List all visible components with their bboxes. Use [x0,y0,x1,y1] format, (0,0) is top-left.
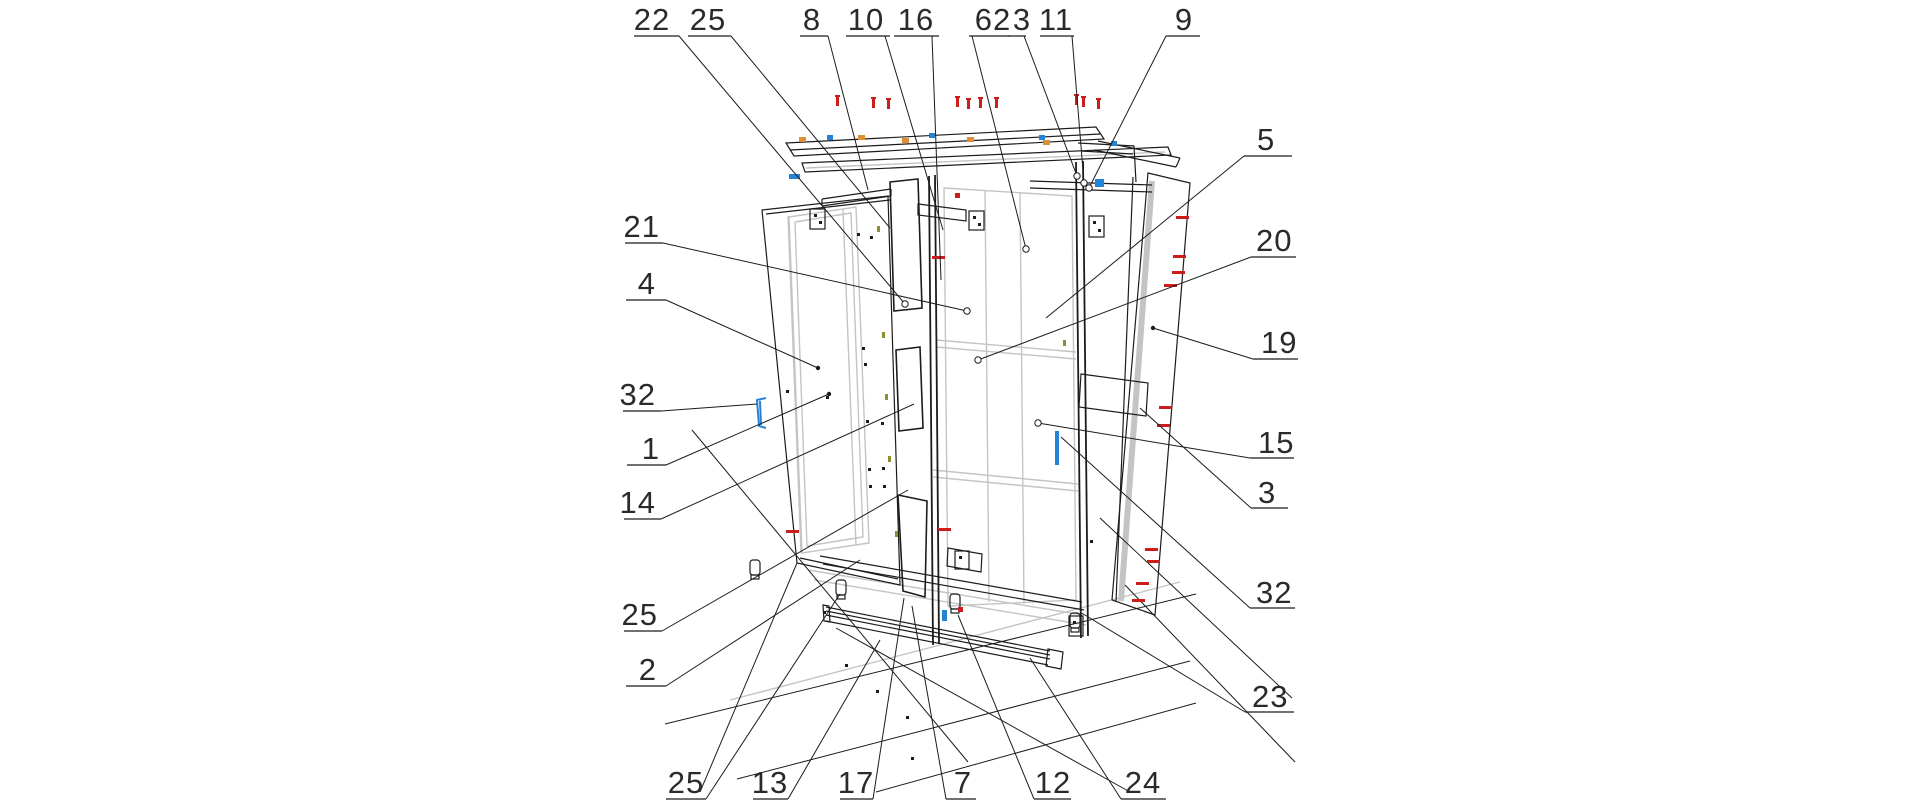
callout-23-right: 23 [1080,612,1294,714]
leader-line [1024,36,1077,176]
screw-icon [1147,560,1160,563]
screw-head-icon [1096,98,1101,100]
leader-line [978,257,1251,360]
fitting-blue-icon [1055,431,1059,465]
callout-22-top: 22 [634,2,908,307]
hole-dot [857,233,860,236]
connector-upper [918,204,966,221]
callout-25-left: 25 [622,490,908,632]
leader-line [1061,437,1250,608]
leader-end-dot [816,366,820,370]
screw-icon [786,530,799,533]
dowel-icon [877,226,880,232]
part-number-label: 8 [803,2,821,37]
leader-line [679,36,905,304]
hole-dot [870,236,873,239]
hole-dot [883,485,886,488]
callout-12-bottom: 12 [958,615,1071,800]
hole-dot [862,347,865,350]
fitting-orange-icon [902,138,909,143]
hole-dot [911,757,914,760]
right-partition [1076,161,1088,638]
hole-dot [866,420,869,423]
leader-line [972,36,1026,249]
part-number-label: 3 [1013,2,1031,37]
leader-end-circle [964,308,970,314]
exploded-view-drawing: 2225810166231195201915332232513177122421… [0,0,1916,804]
leader-end-circle [1074,173,1080,179]
leader-end-circle [1035,420,1041,426]
leader-line [666,300,818,368]
part-number-label: 13 [752,765,788,800]
leader-end-dot [827,392,831,396]
part-number-label: 1 [642,431,660,466]
fitting-blue-icon [1095,179,1104,187]
wireframe-secondary [730,152,1180,700]
leader-line [1080,612,1245,712]
dowel-icon [895,531,898,537]
fitting-blue-icon [1039,135,1045,140]
screw-icon [1172,271,1185,274]
fitting-blue-icon [827,135,833,140]
screw-icon [1176,216,1189,219]
part-number-label: 3 [1258,475,1276,510]
callout-layer: 2225810166231195201915332232513177122421… [620,2,1298,800]
fitting-blue-icon [929,133,935,138]
leader-line [1089,36,1166,188]
part-number-label: 15 [1258,425,1294,460]
screw-head-icon [1081,96,1086,98]
fitting-orange-icon [858,135,865,140]
part-number-label: 16 [898,2,934,37]
left-door-panel [762,196,900,585]
screw-icon [1136,582,1149,585]
part-number-label: 7 [954,765,972,800]
fitting-orange-icon [967,137,974,142]
hole-dot [1090,540,1093,543]
corner-brackets [810,209,1104,636]
hole-dot [881,422,884,425]
screw-head-icon [835,95,840,97]
part-number-label: 21 [624,209,660,244]
part-number-label: 20 [1256,223,1292,258]
part-number-label: 32 [620,377,656,412]
hole-dot [786,390,789,393]
leader-end-dot [1151,326,1155,330]
callout-20-right: 20 [975,223,1296,363]
fitting-icon [955,193,960,198]
leader-end-circle [1081,180,1087,186]
leader-line [1140,408,1251,508]
leader-line [1038,423,1250,458]
leader-line [932,36,941,280]
callout-2-left: 2 [626,560,860,687]
leader-end-circle [1086,185,1092,191]
screw-icon [938,528,951,531]
fitting-icon [958,607,963,612]
part-number-label: 24 [1125,765,1161,800]
leader-line [1153,328,1253,359]
hole-dot [906,716,909,719]
leader-end-circle [1023,246,1029,252]
part-number-label: 9 [1175,2,1193,37]
fitting-orange-icon [799,137,806,142]
hole-dot [823,611,826,614]
leader-line [661,404,914,519]
leader-line [873,598,904,799]
screw-icon [1132,599,1145,602]
screw-icon [1159,406,1172,409]
callout-32-right: 32 [1061,437,1295,610]
screw-head-icon [871,97,876,99]
dowel-icon [1063,340,1066,346]
part-number-label: 4 [638,266,656,301]
callout-19-right: 19 [1151,325,1298,360]
part-number-label: 12 [1035,765,1071,800]
callout-9-top: 9 [1086,2,1200,191]
drawing-canvas: 2225810166231195201915332232513177122421… [0,0,1916,804]
screw-head-icon [978,97,983,99]
screw-head-icon [994,97,999,99]
screw-icon [932,256,945,259]
hole-dot [864,363,867,366]
part-number-label: 25 [690,2,726,37]
part-number-label: 19 [1261,325,1297,360]
hole-dot [845,664,848,667]
part-number-label: 22 [634,2,670,37]
screw-head-icon [886,98,891,100]
hole-dot [868,468,871,471]
leader-line [661,404,757,411]
dowel-icon [888,456,891,462]
fitting-orange-icon [1043,140,1050,145]
top-panel [786,127,1180,172]
part-number-label: 14 [620,485,656,520]
part-number-label: 17 [838,765,874,800]
leader-end-circle [902,301,908,307]
callout-32-left: 32 [620,377,757,412]
part-number-label: 23 [1252,679,1288,714]
part-number-label: 25 [622,597,658,632]
hole-dot [826,396,829,399]
center-partition [929,175,939,645]
leader-line [731,36,890,228]
floor-lines [665,430,1295,792]
dowel-icon [882,332,885,338]
leader-line [1072,36,1084,183]
part-number-label: 5 [1257,122,1275,157]
part-number-label: 62 [975,2,1011,37]
hole-dot [876,690,879,693]
screw-icon [1145,548,1158,551]
part-number-label: 25 [668,765,704,800]
hole-dot [869,485,872,488]
fitting-blue-icon [942,610,947,621]
strip-middle [896,347,923,431]
dowel-icon [885,394,888,400]
part-number-label: 10 [848,2,884,37]
hole-dot [882,467,885,470]
part-number-label: 11 [1039,2,1073,37]
leader-end-circle [975,357,981,363]
screw-head-icon [955,96,960,98]
hardware-layer [757,94,1189,760]
leader-line [662,490,908,631]
screw-icon [1173,255,1186,258]
screw-head-icon [966,98,971,100]
part-number-label: 2 [639,652,657,687]
part-number-label: 32 [1256,575,1292,610]
callout-16-top: 16 [894,2,941,280]
callout-1-left: 1 [627,392,831,466]
leader-line [666,560,860,686]
